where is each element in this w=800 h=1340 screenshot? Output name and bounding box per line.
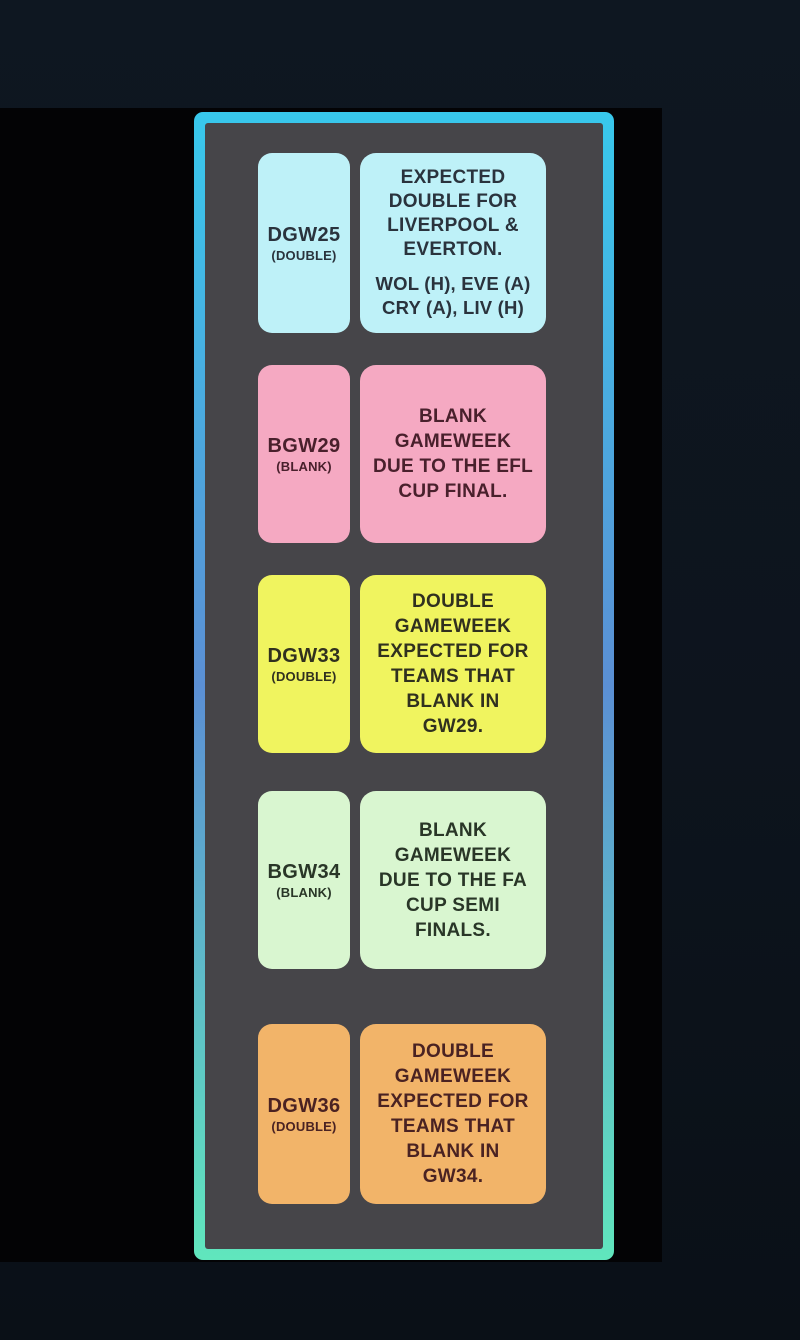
gameweek-label-box: DGW25 (DOUBLE) — [258, 153, 350, 333]
gameweek-label-box: DGW36 (DOUBLE) — [258, 1024, 350, 1204]
gameweek-type: (BLANK) — [276, 885, 332, 900]
gameweek-card-border: DGW25 (DOUBLE) EXPECTED DOUBLE FOR LIVER… — [194, 112, 614, 1260]
gameweek-card: DGW25 (DOUBLE) EXPECTED DOUBLE FOR LIVER… — [205, 123, 603, 1249]
gameweek-description-box: EXPECTED DOUBLE FOR LIVERPOOL & EVERTON.… — [360, 153, 546, 333]
gameweek-fixtures: WOL (H), EVE (A) CRY (A), LIV (H) — [376, 272, 531, 320]
gameweek-type: (DOUBLE) — [271, 248, 336, 263]
gameweek-code: DGW33 — [267, 645, 340, 668]
gameweek-code: DGW36 — [267, 1095, 340, 1118]
gameweek-code: DGW25 — [267, 224, 340, 247]
gameweek-description-box: DOUBLE GAMEWEEK EXPECTED FOR TEAMS THAT … — [360, 1024, 546, 1204]
gameweek-description: DOUBLE GAMEWEEK EXPECTED FOR TEAMS THAT … — [377, 589, 528, 739]
gameweek-row: BGW29 (BLANK) BLANK GAMEWEEK DUE TO THE … — [258, 365, 603, 543]
gameweek-row: DGW36 (DOUBLE) DOUBLE GAMEWEEK EXPECTED … — [258, 1024, 603, 1204]
gameweek-type: (DOUBLE) — [271, 1119, 336, 1134]
gameweek-description-box: DOUBLE GAMEWEEK EXPECTED FOR TEAMS THAT … — [360, 575, 546, 753]
page-background: { "theme": { "page_bg": "#0d141d", "back… — [0, 0, 800, 1340]
gameweek-label-box: DGW33 (DOUBLE) — [258, 575, 350, 753]
gameweek-row: DGW25 (DOUBLE) EXPECTED DOUBLE FOR LIVER… — [258, 153, 603, 333]
gameweek-list: DGW25 (DOUBLE) EXPECTED DOUBLE FOR LIVER… — [205, 153, 603, 1204]
gameweek-description: EXPECTED DOUBLE FOR LIVERPOOL & EVERTON. — [387, 166, 519, 262]
gameweek-code: BGW29 — [267, 435, 340, 458]
gameweek-type: (DOUBLE) — [271, 669, 336, 684]
gameweek-description-box: BLANK GAMEWEEK DUE TO THE FA CUP SEMI FI… — [360, 791, 546, 969]
gameweek-description: BLANK GAMEWEEK DUE TO THE FA CUP SEMI FI… — [379, 818, 527, 943]
gameweek-label-box: BGW29 (BLANK) — [258, 365, 350, 543]
gameweek-description: BLANK GAMEWEEK DUE TO THE EFL CUP FINAL. — [373, 404, 533, 504]
gameweek-row: DGW33 (DOUBLE) DOUBLE GAMEWEEK EXPECTED … — [258, 575, 603, 753]
gameweek-label-box: BGW34 (BLANK) — [258, 791, 350, 969]
gameweek-type: (BLANK) — [276, 459, 332, 474]
gameweek-row: BGW34 (BLANK) BLANK GAMEWEEK DUE TO THE … — [258, 791, 603, 969]
gameweek-description-box: BLANK GAMEWEEK DUE TO THE EFL CUP FINAL. — [360, 365, 546, 543]
gameweek-description: DOUBLE GAMEWEEK EXPECTED FOR TEAMS THAT … — [377, 1039, 528, 1189]
gameweek-code: BGW34 — [267, 861, 340, 884]
